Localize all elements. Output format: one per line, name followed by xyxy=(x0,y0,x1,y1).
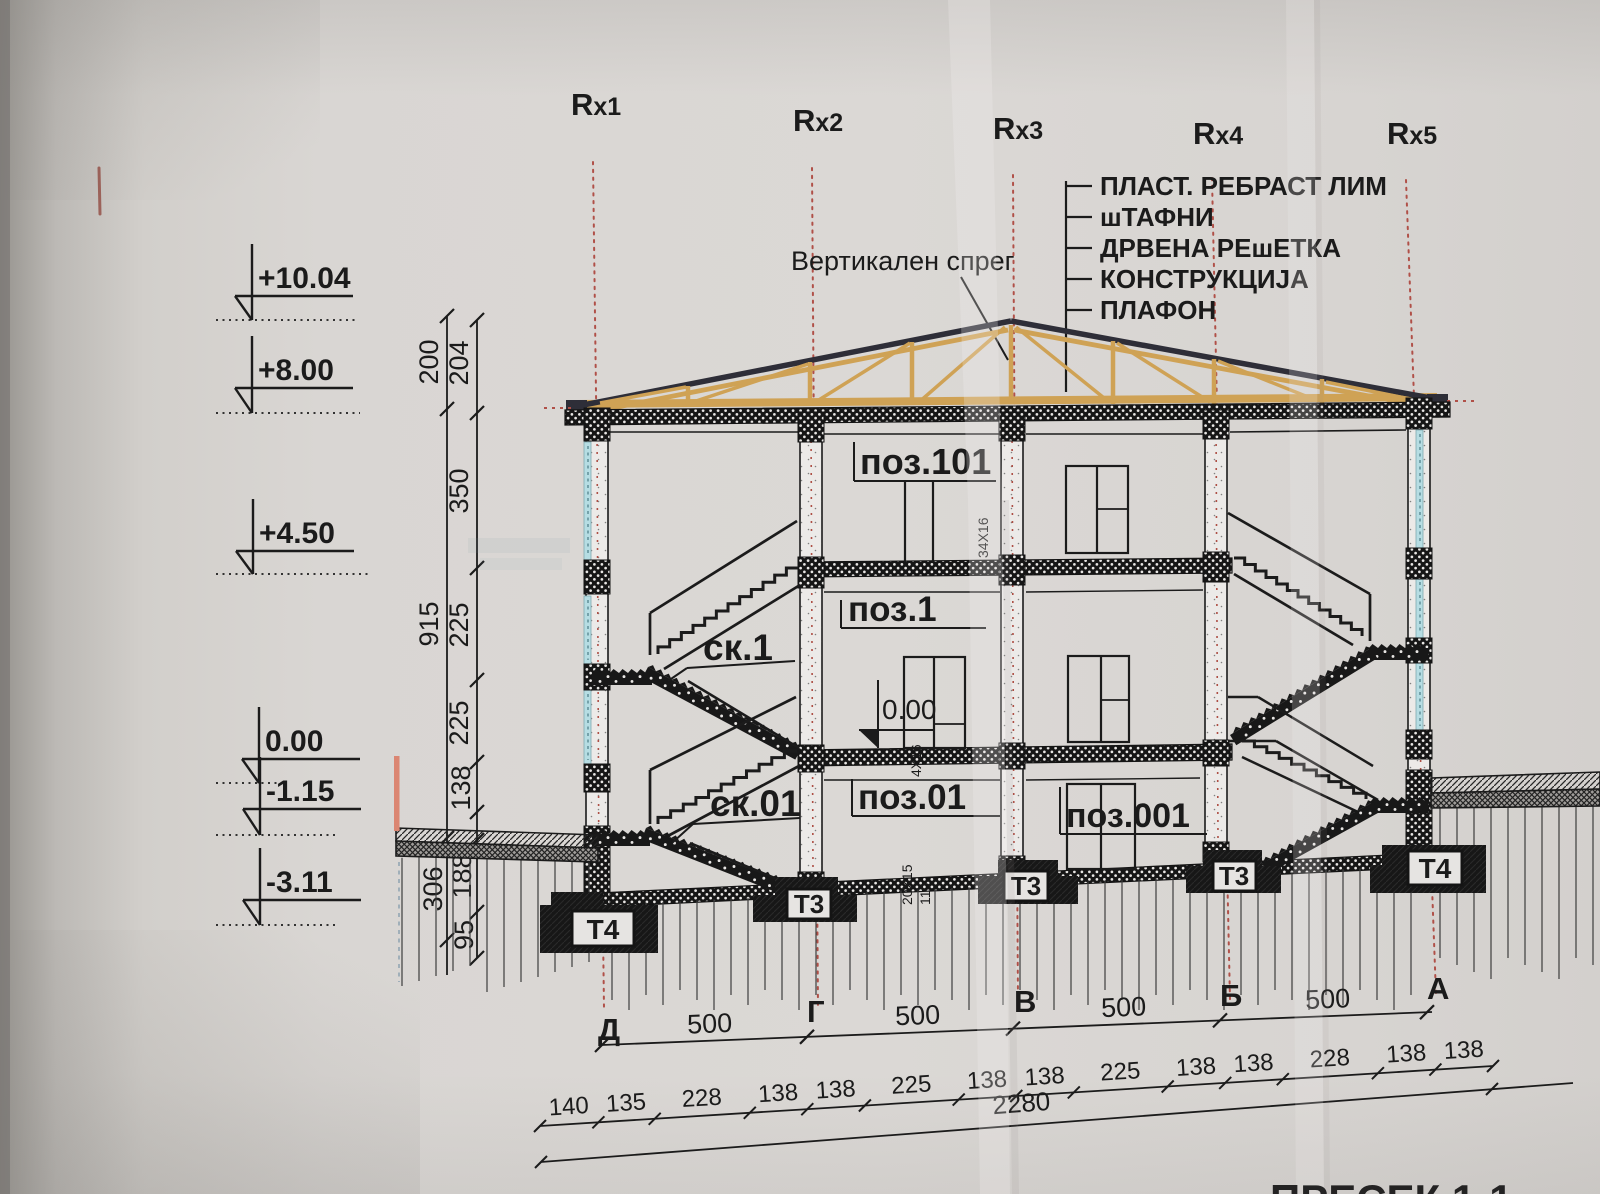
svg-text:шТАФНИ: шТАФНИ xyxy=(1100,202,1214,232)
svg-text:135: 135 xyxy=(605,1088,647,1117)
svg-text:Б: Б xyxy=(1220,978,1242,1013)
svg-text:Rx1: Rx1 xyxy=(571,87,621,122)
svg-text:ск.1: ск.1 xyxy=(703,627,773,668)
svg-text:500: 500 xyxy=(687,1008,733,1040)
svg-text:КОНСТРУКЦИЈА: КОНСТРУКЦИЈА xyxy=(1100,264,1309,294)
svg-text:ПЛАФОН: ПЛАФОН xyxy=(1100,295,1216,325)
svg-text:-3.11: -3.11 xyxy=(266,866,333,899)
svg-text:140: 140 xyxy=(548,1092,590,1121)
svg-text:138: 138 xyxy=(1443,1036,1485,1065)
svg-text:Т3: Т3 xyxy=(1011,871,1041,901)
svg-text:Т3: Т3 xyxy=(794,889,824,919)
svg-text:поз.001: поз.001 xyxy=(1066,797,1190,835)
svg-text:225: 225 xyxy=(890,1070,932,1099)
svg-text:Д: Д xyxy=(598,1012,620,1047)
svg-text:500: 500 xyxy=(1101,991,1147,1023)
svg-text:225: 225 xyxy=(444,602,474,647)
svg-text:0.00: 0.00 xyxy=(265,725,323,758)
svg-text:Rx5: Rx5 xyxy=(1387,116,1437,151)
svg-text:+10.04: +10.04 xyxy=(258,262,351,295)
svg-text:Т4: Т4 xyxy=(1419,853,1452,884)
svg-text:204: 204 xyxy=(444,340,474,385)
svg-text:225: 225 xyxy=(1099,1057,1141,1086)
svg-text:Rx4: Rx4 xyxy=(1193,116,1243,151)
svg-text:138: 138 xyxy=(815,1075,857,1104)
svg-text:-1.15: -1.15 xyxy=(266,775,334,808)
svg-text:Т4: Т4 xyxy=(587,914,620,945)
svg-text:0.00: 0.00 xyxy=(882,694,937,725)
svg-text:500: 500 xyxy=(895,1000,941,1032)
svg-text:350: 350 xyxy=(444,468,474,513)
svg-text:188: 188 xyxy=(447,853,477,898)
svg-text:138: 138 xyxy=(1175,1052,1217,1081)
svg-text:поз.01: поз.01 xyxy=(858,778,966,817)
svg-text:А: А xyxy=(1427,971,1449,1006)
svg-text:138: 138 xyxy=(757,1079,799,1108)
svg-text:200: 200 xyxy=(414,339,444,384)
svg-text:138: 138 xyxy=(1233,1049,1275,1078)
svg-text:ПРЕСЕК 1-1: ПРЕСЕК 1-1 xyxy=(1270,1176,1513,1194)
svg-text:Rx2: Rx2 xyxy=(793,103,843,138)
svg-text:138: 138 xyxy=(446,765,476,810)
svg-text:225: 225 xyxy=(444,700,474,745)
svg-text:поз.1: поз.1 xyxy=(848,590,937,629)
svg-text:+4.50: +4.50 xyxy=(259,517,335,550)
svg-text:В: В xyxy=(1014,984,1036,1019)
svg-text:228: 228 xyxy=(681,1084,723,1113)
svg-text:110: 110 xyxy=(917,882,933,905)
svg-text:Г: Г xyxy=(807,994,825,1029)
svg-text:306: 306 xyxy=(418,866,448,911)
svg-text:ПЛАСТ. РЕБРАСТ ЛИМ: ПЛАСТ. РЕБРАСТ ЛИМ xyxy=(1100,171,1387,201)
svg-text:Т3: Т3 xyxy=(1219,861,1249,891)
svg-text:138: 138 xyxy=(1385,1039,1427,1068)
svg-text:915: 915 xyxy=(414,601,444,646)
svg-text:Rx3: Rx3 xyxy=(993,111,1043,146)
svg-text:+8.00: +8.00 xyxy=(258,354,334,387)
svg-text:4Х16: 4Х16 xyxy=(908,744,924,777)
